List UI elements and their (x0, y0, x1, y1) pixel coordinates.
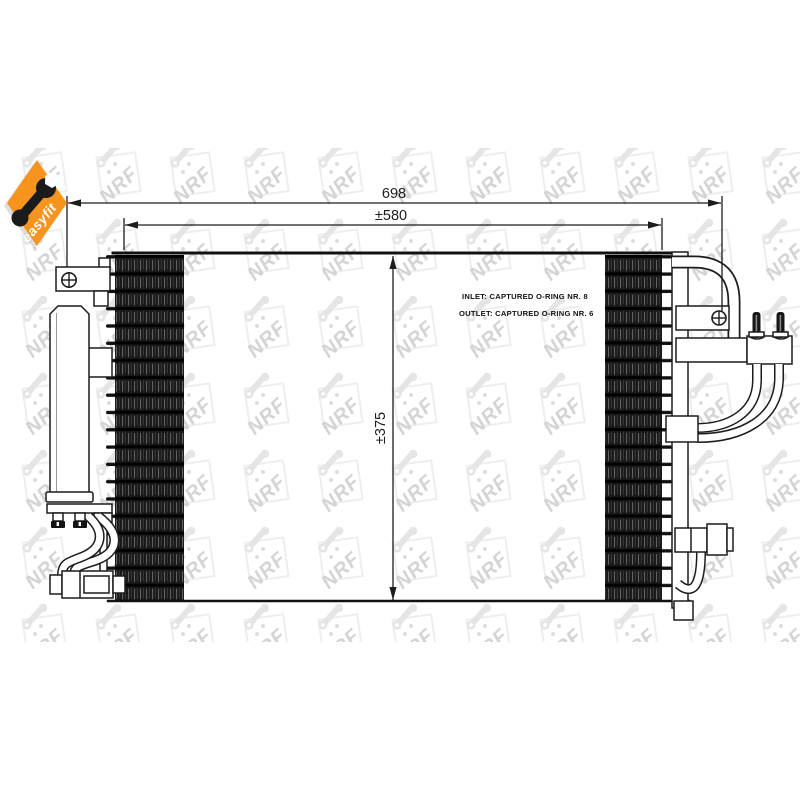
rail-foot-bracket (674, 601, 693, 620)
outlet-annotation: OUTLET: CAPTURED O-RING NR. 6 (459, 309, 594, 318)
dim-label-overall-width: 698 (382, 186, 406, 202)
dim-label-core-width: ±580 (375, 208, 407, 224)
condenser-technical-drawing: NRF (0, 0, 800, 800)
drier-bracket (88, 348, 112, 377)
right-fin-pack (605, 255, 662, 601)
fitting-bar (676, 338, 747, 362)
product-image: NRF (0, 0, 800, 800)
screw-cross-icon (712, 311, 726, 325)
rail-pipe-tab (666, 416, 698, 442)
dim-label-core-height: ±375 (373, 412, 389, 444)
left-fin-pack (115, 255, 184, 601)
inlet-annotation: INLET: CAPTURED O-RING NR. 8 (462, 292, 588, 301)
bottom-connector-block (50, 571, 125, 598)
bracket-screw-icon (62, 273, 76, 287)
